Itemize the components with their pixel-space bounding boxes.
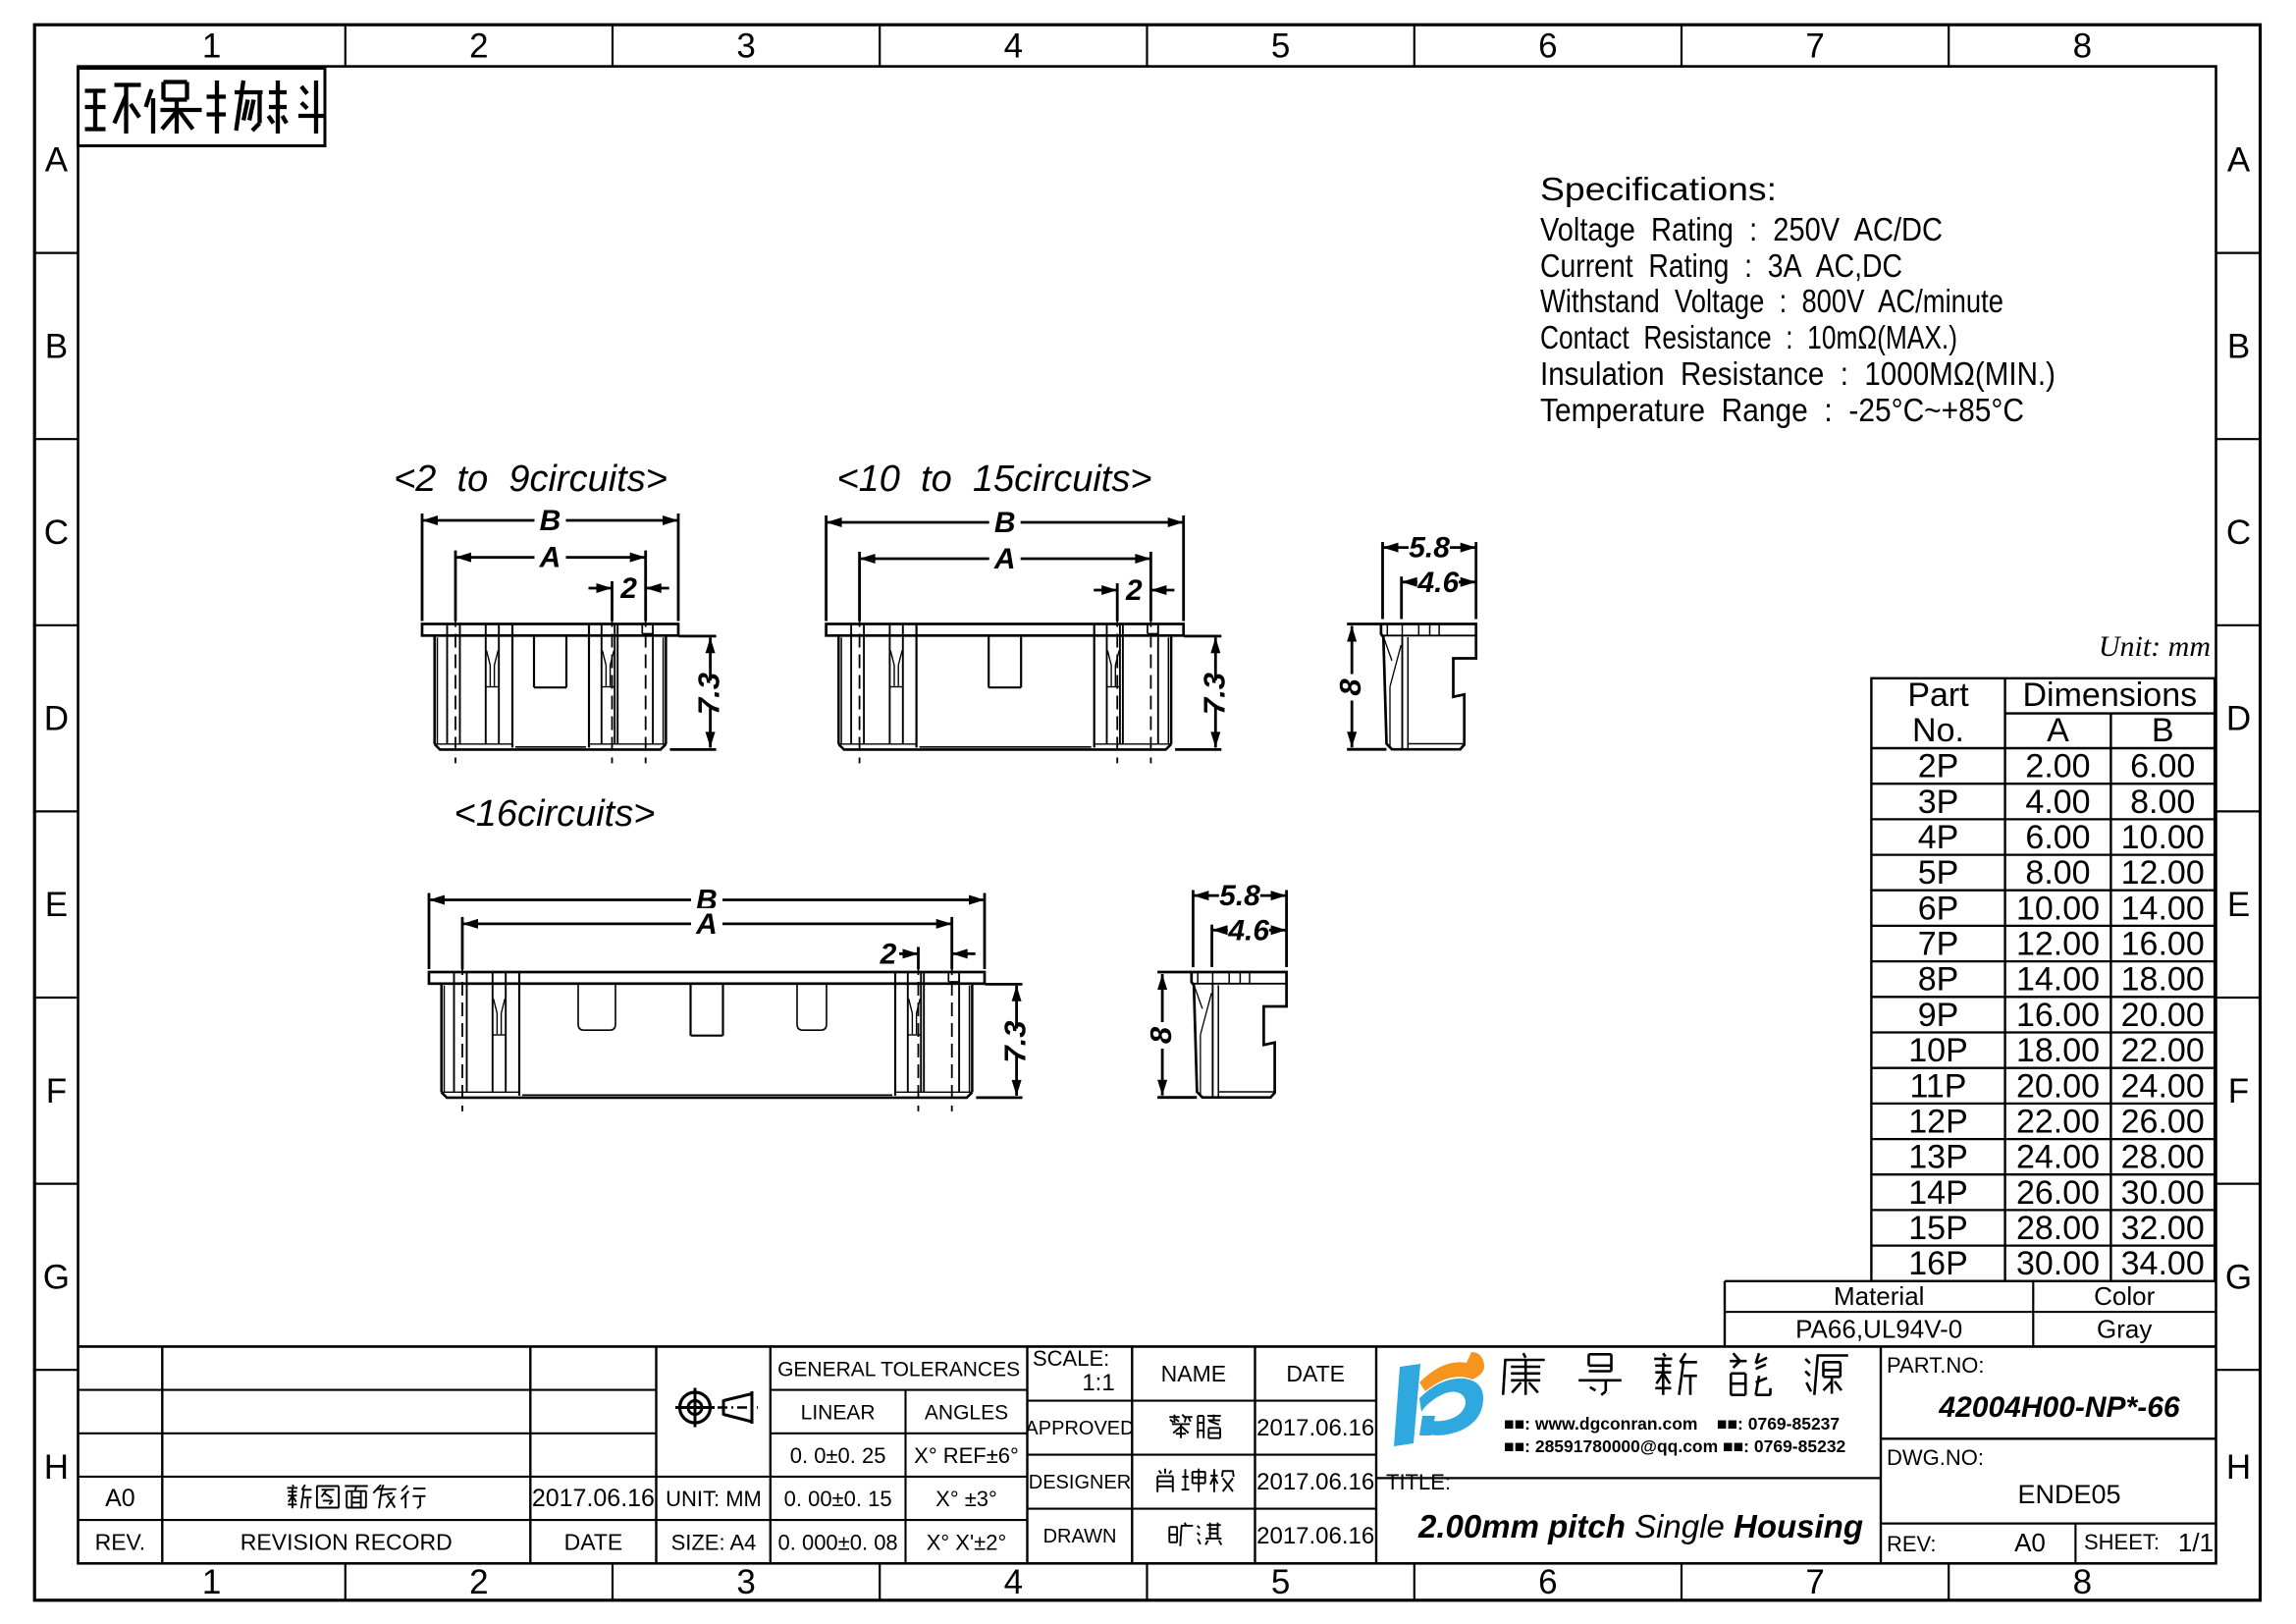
svg-text:TITLE:: TITLE: <box>1386 1470 1451 1494</box>
svg-text:8: 8 <box>1333 678 1367 696</box>
svg-text:A: A <box>993 543 1016 575</box>
svg-text:6.00: 6.00 <box>2130 748 2195 785</box>
svg-text:28.00: 28.00 <box>2121 1139 2205 1176</box>
svg-text:C: C <box>44 514 69 552</box>
svg-text:LINEAR: LINEAR <box>801 1402 876 1425</box>
svg-text:<16circuits>: <16circuits> <box>454 793 656 835</box>
svg-text:15P: 15P <box>1908 1210 1968 1247</box>
svg-text:5: 5 <box>1271 1563 1290 1601</box>
svg-text:12.00: 12.00 <box>2121 854 2205 892</box>
svg-text:E: E <box>2227 886 2250 924</box>
svg-text:D: D <box>44 700 69 738</box>
svg-text:1:1: 1:1 <box>1082 1370 1114 1396</box>
svg-text:0. 00±0. 15: 0. 00±0. 15 <box>784 1487 892 1511</box>
svg-text:A: A <box>2227 141 2251 180</box>
svg-text:1/1: 1/1 <box>2178 1528 2214 1557</box>
svg-text:4.6: 4.6 <box>1416 567 1459 599</box>
svg-text:Temperature Range : -25°C~+: Temperature Range : -25°C~+85°C <box>1540 392 2024 428</box>
svg-text:Dimensions: Dimensions <box>2022 677 2197 714</box>
svg-text:DRAWN: DRAWN <box>1043 1526 1117 1547</box>
svg-text:B: B <box>2152 712 2174 749</box>
svg-text:2017.06.16: 2017.06.16 <box>532 1485 655 1512</box>
svg-text:14.00: 14.00 <box>2121 890 2205 927</box>
svg-text:4.00: 4.00 <box>2025 784 2090 821</box>
svg-text:10P: 10P <box>1908 1032 1968 1069</box>
svg-text:7.3: 7.3 <box>692 673 726 715</box>
svg-text:A: A <box>45 141 69 180</box>
svg-text:5P: 5P <box>1918 854 1959 892</box>
svg-text:10.00: 10.00 <box>2016 890 2100 927</box>
svg-text:REV:: REV: <box>1887 1532 1937 1556</box>
svg-text:C: C <box>2226 514 2251 552</box>
svg-text:8: 8 <box>1144 1026 1178 1044</box>
svg-text:13P: 13P <box>1908 1139 1968 1176</box>
svg-text:5.8: 5.8 <box>1219 880 1260 912</box>
svg-text:SCALE:: SCALE: <box>1033 1346 1109 1371</box>
svg-text:B: B <box>994 507 1016 539</box>
svg-text:X° X'±2°: X° X'±2° <box>927 1531 1007 1555</box>
svg-text:8P: 8P <box>1918 961 1959 999</box>
svg-text:4P: 4P <box>1918 819 1959 856</box>
svg-text:0. 000±0. 08: 0. 000±0. 08 <box>778 1531 898 1555</box>
svg-text:E: E <box>45 886 68 924</box>
svg-text:22.00: 22.00 <box>2121 1032 2205 1069</box>
svg-text:SHEET:: SHEET: <box>2084 1530 2160 1554</box>
svg-text:Gray: Gray <box>2097 1315 2152 1344</box>
svg-text:Voltage Rating : 250V AC/D: Voltage Rating : 250V AC/DC <box>1540 211 1943 247</box>
svg-text:7.3: 7.3 <box>1197 673 1231 715</box>
svg-text:REV.: REV. <box>95 1530 146 1555</box>
svg-text:6.00: 6.00 <box>2025 819 2090 856</box>
svg-text:H: H <box>44 1448 69 1487</box>
svg-text:5: 5 <box>1271 27 1290 65</box>
svg-text:G: G <box>2225 1258 2252 1296</box>
svg-text:G: G <box>43 1258 70 1296</box>
svg-text:24.00: 24.00 <box>2121 1067 2205 1105</box>
svg-text:3: 3 <box>736 27 755 65</box>
svg-text:30.00: 30.00 <box>2016 1245 2100 1282</box>
svg-text:Part: Part <box>1907 677 1969 714</box>
svg-text:6: 6 <box>1538 1563 1557 1601</box>
svg-text:7.3: 7.3 <box>998 1020 1033 1062</box>
svg-text:B: B <box>2227 327 2250 365</box>
svg-text:Insulation Resistance : 100: Insulation Resistance : 1000MΩ(MIN.) <box>1540 355 2056 392</box>
svg-text:■■: 28591780000@qq.com ■■: 076: ■■: 28591780000@qq.com ■■: 0769-85232 <box>1504 1436 1846 1456</box>
svg-text:Contact Resistance : 10mΩ(M: Contact Resistance : 10mΩ(MAX.) <box>1540 319 1957 355</box>
svg-text:B: B <box>540 505 561 537</box>
svg-text:2: 2 <box>619 572 637 605</box>
svg-text:42004H00-NP*-66: 42004H00-NP*-66 <box>1938 1391 2179 1424</box>
svg-text:ENDE05: ENDE05 <box>2017 1480 2120 1509</box>
svg-text:34.00: 34.00 <box>2121 1245 2205 1282</box>
svg-text:DATE: DATE <box>1286 1361 1345 1386</box>
svg-text:2: 2 <box>469 1563 488 1601</box>
svg-text:14P: 14P <box>1908 1174 1968 1212</box>
svg-text:4: 4 <box>1004 1563 1023 1601</box>
svg-text:F: F <box>2228 1072 2249 1110</box>
svg-text:2017.06.16: 2017.06.16 <box>1256 1415 1374 1441</box>
svg-text:7: 7 <box>1805 1563 1824 1601</box>
svg-text:A: A <box>2047 712 2069 749</box>
svg-text:2017.06.16: 2017.06.16 <box>1256 1523 1374 1549</box>
svg-text:APPROVED: APPROVED <box>1025 1418 1134 1439</box>
svg-text:6P: 6P <box>1918 890 1959 927</box>
svg-text:DESIGNER: DESIGNER <box>1029 1472 1131 1493</box>
svg-text:<10 to 15circuits>: <10 to 15circuits> <box>836 459 1151 500</box>
svg-text:7P: 7P <box>1918 926 1959 963</box>
svg-text:4: 4 <box>1004 27 1023 65</box>
svg-text:Current Rating : 3A AC,DC: Current Rating : 3A AC,DC <box>1540 247 1902 284</box>
svg-text:26.00: 26.00 <box>2016 1174 2100 1212</box>
svg-text:H: H <box>2226 1448 2251 1487</box>
svg-text:12.00: 12.00 <box>2016 926 2100 963</box>
svg-text:No.: No. <box>1912 712 1964 749</box>
svg-text:28.00: 28.00 <box>2016 1210 2100 1247</box>
svg-text:PART.NO:: PART.NO: <box>1887 1353 1984 1378</box>
svg-text:4.6: 4.6 <box>1227 914 1269 947</box>
svg-text:12P: 12P <box>1908 1104 1968 1141</box>
svg-text:2017.06.16: 2017.06.16 <box>1256 1469 1374 1495</box>
svg-text:6: 6 <box>1538 27 1557 65</box>
svg-text:Color: Color <box>2094 1281 2155 1311</box>
svg-text:A: A <box>539 542 561 574</box>
svg-text:UNIT: MM: UNIT: MM <box>666 1487 762 1511</box>
svg-text:F: F <box>46 1072 67 1110</box>
svg-text:NAME: NAME <box>1161 1361 1226 1386</box>
svg-text:Specifications:: Specifications: <box>1540 171 1777 207</box>
svg-text:2: 2 <box>1125 574 1143 607</box>
svg-text:SIZE: A4: SIZE: A4 <box>671 1531 757 1555</box>
svg-text:A: A <box>695 908 718 941</box>
svg-text:8.00: 8.00 <box>2025 854 2090 892</box>
svg-text:5.8: 5.8 <box>1409 532 1450 565</box>
svg-text:26.00: 26.00 <box>2121 1104 2205 1141</box>
svg-text:2P: 2P <box>1918 748 1959 785</box>
svg-text:16.00: 16.00 <box>2121 926 2205 963</box>
svg-text:22.00: 22.00 <box>2016 1104 2100 1141</box>
svg-text:30.00: 30.00 <box>2121 1174 2205 1212</box>
svg-text:2.00mm pitch Single Housing: 2.00mm pitch Single Housing <box>1417 1508 1863 1544</box>
svg-text:11P: 11P <box>1910 1067 1967 1105</box>
svg-text:10.00: 10.00 <box>2121 819 2205 856</box>
svg-text:1: 1 <box>202 1563 221 1601</box>
svg-text:14.00: 14.00 <box>2016 961 2100 999</box>
svg-text:24.00: 24.00 <box>2016 1139 2100 1176</box>
svg-text:GENERAL TOLERANCES: GENERAL TOLERANCES <box>777 1359 1020 1381</box>
svg-text:D: D <box>2226 700 2251 738</box>
svg-text:7: 7 <box>1805 27 1824 65</box>
svg-text:X° REF±6°: X° REF±6° <box>914 1443 1019 1468</box>
svg-text:1: 1 <box>202 27 221 65</box>
svg-text:9P: 9P <box>1918 997 1959 1034</box>
svg-text:16P: 16P <box>1908 1245 1968 1282</box>
svg-text:20.00: 20.00 <box>2121 997 2205 1034</box>
svg-text:Material: Material <box>1834 1281 1924 1311</box>
svg-text:B: B <box>45 327 68 365</box>
svg-text:<2 to 9circuits>: <2 to 9circuits> <box>394 459 667 500</box>
svg-text:3: 3 <box>736 1563 755 1601</box>
svg-text:X° ±3°: X° ±3° <box>935 1487 997 1511</box>
svg-text:16.00: 16.00 <box>2016 997 2100 1034</box>
svg-text:REVISION RECORD: REVISION RECORD <box>240 1530 453 1555</box>
svg-text:DWG.NO:: DWG.NO: <box>1887 1445 1984 1470</box>
svg-text:A0: A0 <box>2014 1528 2046 1557</box>
svg-text:Withstand Voltage : 800V A: Withstand Voltage : 800V AC/minute <box>1540 283 2003 319</box>
svg-text:2: 2 <box>469 27 488 65</box>
svg-text:Unit: mm: Unit: mm <box>2099 630 2211 663</box>
svg-text:A0: A0 <box>105 1485 135 1512</box>
svg-text:0. 0±0. 25: 0. 0±0. 25 <box>790 1443 886 1468</box>
svg-text:ANGLES: ANGLES <box>925 1402 1008 1425</box>
svg-text:DATE: DATE <box>564 1530 623 1555</box>
svg-text:8: 8 <box>2073 27 2092 65</box>
svg-text:18.00: 18.00 <box>2121 961 2205 999</box>
svg-text:18.00: 18.00 <box>2016 1032 2100 1069</box>
svg-text:2: 2 <box>880 938 897 970</box>
svg-text:20.00: 20.00 <box>2016 1067 2100 1105</box>
svg-text:PA66,UL94V-0: PA66,UL94V-0 <box>1795 1315 1962 1344</box>
svg-text:3P: 3P <box>1918 784 1959 821</box>
svg-text:8.00: 8.00 <box>2130 784 2195 821</box>
svg-text:■■: www.dgconran.com ■■: 07: ■■: www.dgconran.com ■■: 0769-85237 <box>1504 1414 1840 1434</box>
svg-text:2.00: 2.00 <box>2025 748 2090 785</box>
svg-text:8: 8 <box>2073 1563 2092 1601</box>
svg-text:32.00: 32.00 <box>2121 1210 2205 1247</box>
